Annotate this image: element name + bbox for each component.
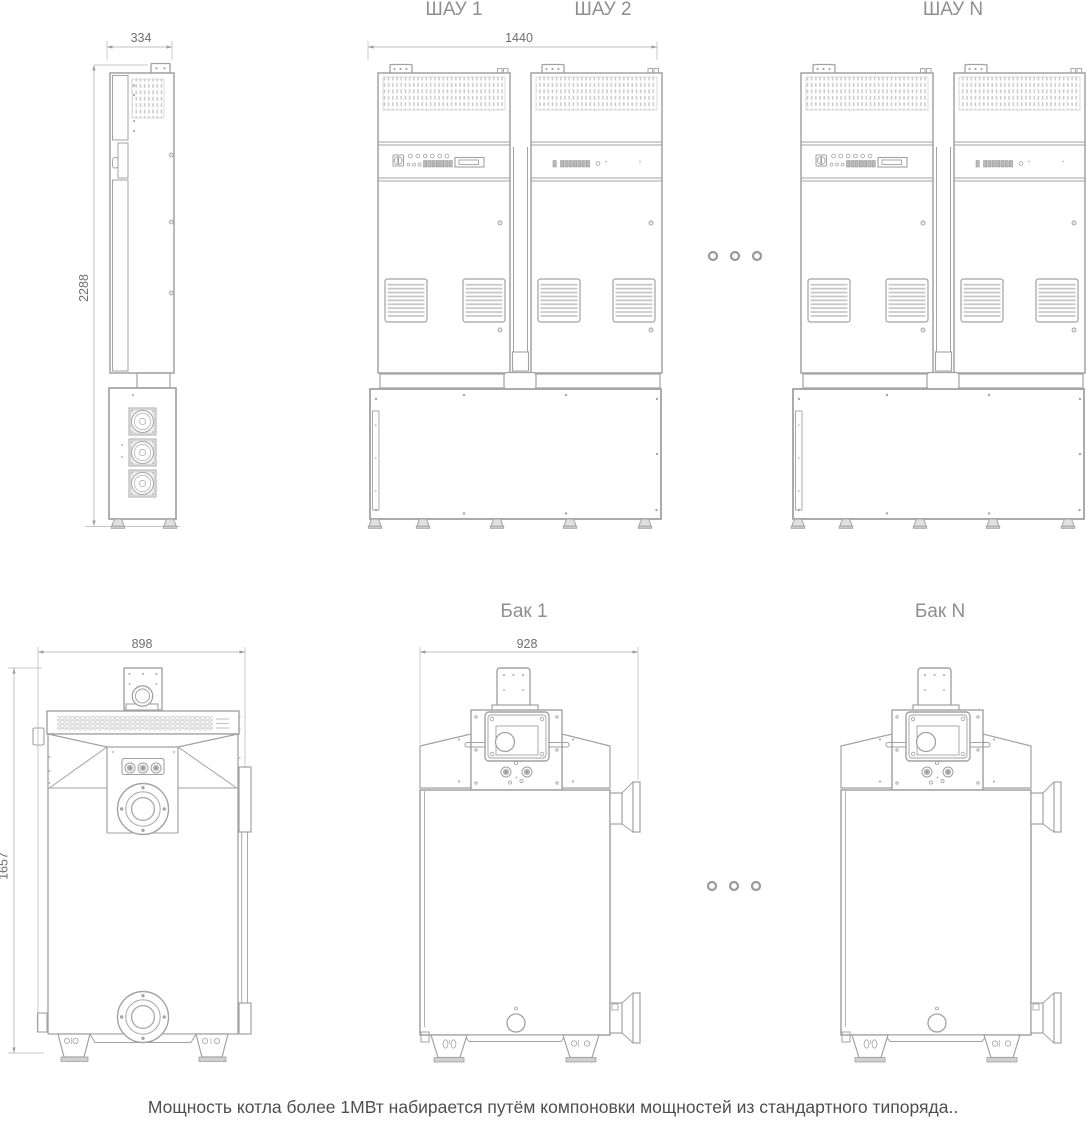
dim-text: 2288 (77, 274, 91, 302)
pipe-flange-upper (118, 784, 169, 835)
dim-text: 1657 (0, 852, 11, 880)
foot (111, 519, 125, 528)
ellipsis-dot (753, 252, 761, 260)
ellipsis-dot (730, 882, 738, 890)
lifting-eye (151, 64, 170, 74)
tank-side-view-n (841, 668, 1061, 1062)
foot (163, 519, 177, 528)
hood (48, 734, 238, 747)
tank-front-view (33, 647, 251, 1062)
label-shau-1: ШАУ 1 (425, 0, 482, 20)
label-bak-1: Бак 1 (500, 601, 547, 622)
foot (58, 1034, 90, 1057)
fan-grille (129, 439, 156, 466)
cabinet-side-view (85, 64, 180, 529)
pipe-connector (138, 763, 148, 773)
label-shau-n: ШАУ N (923, 0, 983, 20)
label-bak-n: Бак N (915, 601, 965, 622)
ellipsis-top (709, 252, 761, 260)
caption-text: Мощность котла более 1МВт набирается пут… (148, 1097, 958, 1117)
technical-drawing-page: 334 2288 1440 (0, 0, 1087, 1126)
dim-text: 1440 (505, 31, 533, 45)
dim-width-334: 334 (107, 31, 172, 60)
cabinet-front-pair-1 (368, 65, 662, 529)
dim-width-1440: 1440 (368, 31, 657, 60)
fan-grille (129, 408, 156, 435)
label-shau-2: ШАУ 2 (574, 0, 631, 20)
cabinet-front-pair-n (791, 65, 1085, 529)
foot (196, 1034, 228, 1057)
dim-text: 898 (132, 637, 153, 651)
ellipsis-dot (708, 882, 716, 890)
pipe-connector (125, 763, 135, 773)
fan-grille (129, 470, 156, 497)
boiler-drawing: 334 2288 1440 (0, 0, 1087, 1126)
pipe-flange-lower (118, 992, 169, 1043)
dim-text: 334 (131, 31, 152, 45)
pipe-connector (151, 763, 161, 773)
ellipsis-dot (731, 252, 739, 260)
ellipsis-dot (709, 252, 717, 260)
tank-side-view-1 (420, 668, 640, 1062)
dim-height-1657: 1657 (0, 668, 44, 1053)
ellipsis-dot (752, 882, 760, 890)
dim-text: 928 (517, 637, 538, 651)
vent-perforation (132, 79, 164, 118)
ellipsis-bottom (708, 882, 760, 890)
side-flange-lower (239, 1003, 251, 1034)
side-flange-upper (239, 767, 251, 832)
